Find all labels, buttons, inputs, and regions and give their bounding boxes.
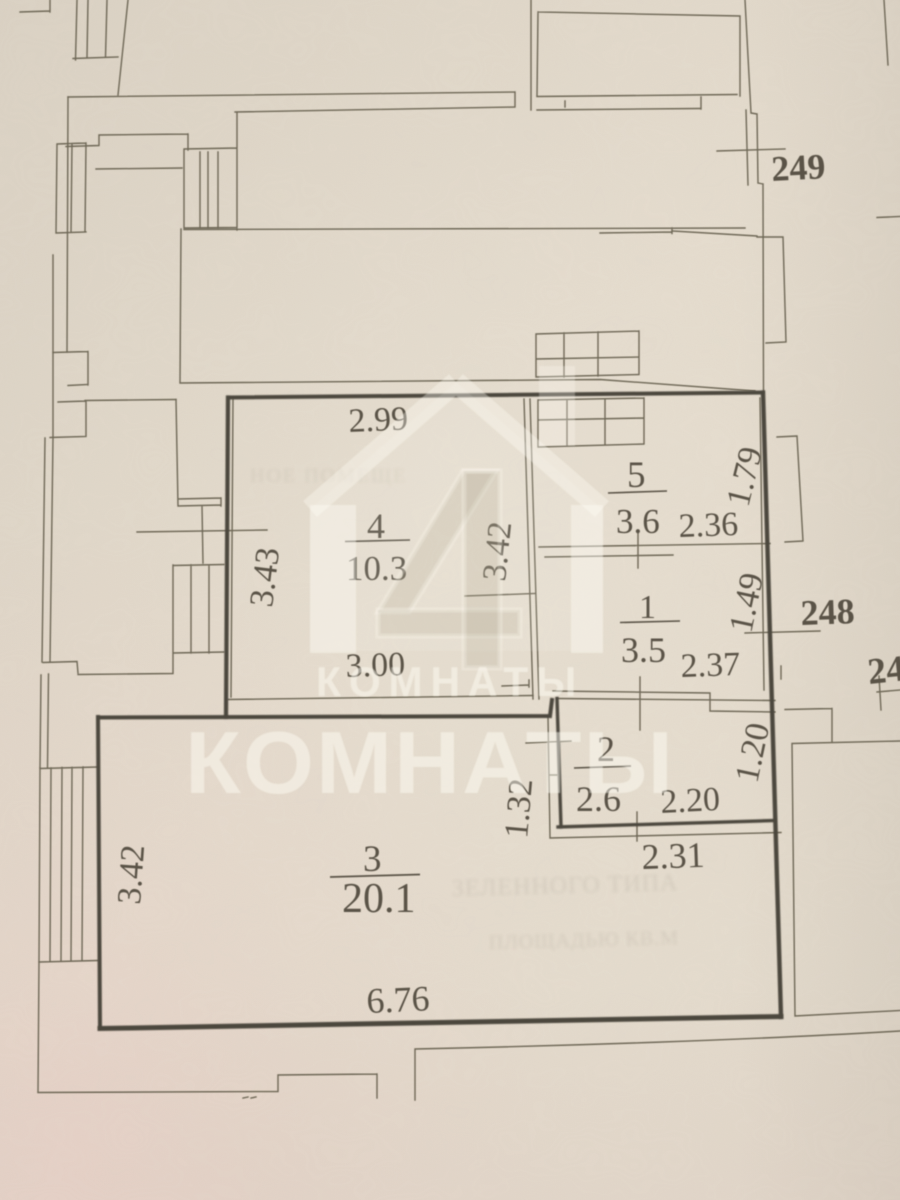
svg-text:КОМНАТЫ: КОМНАТЫ — [316, 658, 584, 705]
svg-text:5: 5 — [627, 455, 646, 496]
svg-text:2.37: 2.37 — [680, 646, 741, 685]
svg-text:249: 249 — [770, 146, 826, 189]
svg-text:КОМНАТЫ: КОМНАТЫ — [185, 713, 675, 812]
svg-text:24: 24 — [866, 648, 900, 693]
svg-text:3.43: 3.43 — [243, 545, 287, 609]
svg-text:1: 1 — [639, 589, 656, 626]
svg-text:2.36: 2.36 — [678, 506, 739, 545]
svg-text:2.31: 2.31 — [641, 835, 705, 877]
svg-text:3.6: 3.6 — [616, 502, 660, 541]
svg-text:3: 3 — [363, 839, 382, 880]
svg-text:6.76: 6.76 — [366, 978, 431, 1021]
svg-text:3.5: 3.5 — [621, 630, 666, 670]
svg-text:248: 248 — [800, 591, 855, 633]
svg-text:20.1: 20.1 — [342, 876, 416, 922]
svg-text:3.42: 3.42 — [111, 844, 152, 906]
